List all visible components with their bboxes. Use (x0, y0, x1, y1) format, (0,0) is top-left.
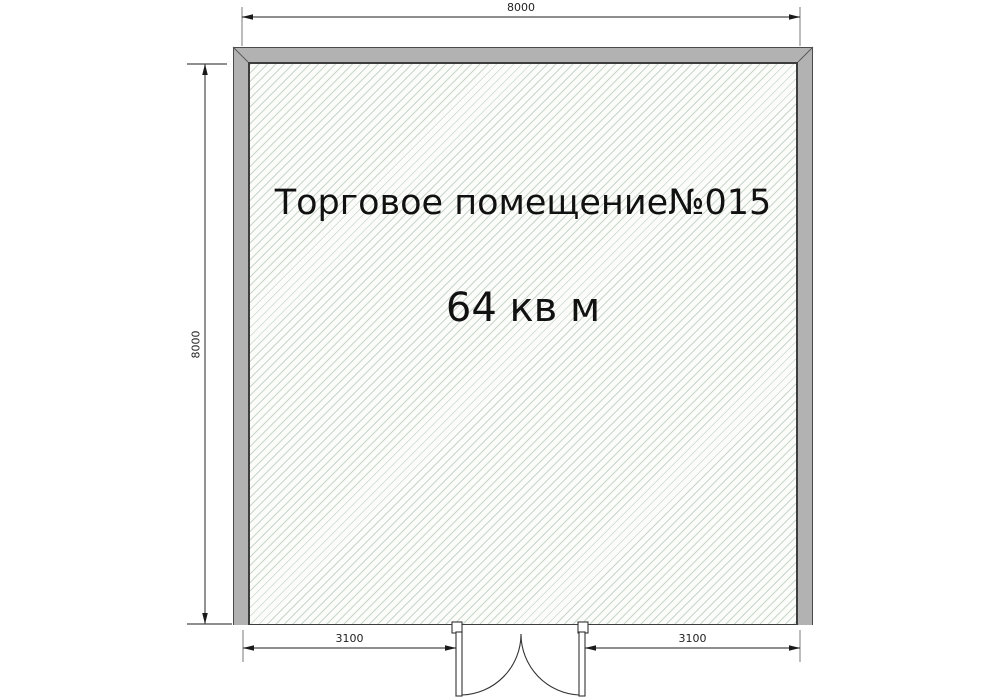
door-leaf-left (456, 632, 462, 696)
floor-plan: 8000 8000 3100 3100 Торговое помещение№0… (0, 0, 1000, 700)
dimension-label-bottom-left: 3100 (243, 632, 456, 645)
door-swing-right (521, 634, 579, 695)
dimension-label-left: 8000 (190, 310, 203, 380)
door-swing-left (462, 634, 521, 695)
dimension-label-bottom-right: 3100 (585, 632, 800, 645)
room-name-label: Торговое помещение№015 (248, 182, 798, 224)
dimension-label-top: 8000 (242, 1, 800, 14)
room-interior-hatch (248, 62, 798, 625)
room-area-label: 64 кв м (248, 284, 798, 332)
double-door (452, 622, 588, 696)
